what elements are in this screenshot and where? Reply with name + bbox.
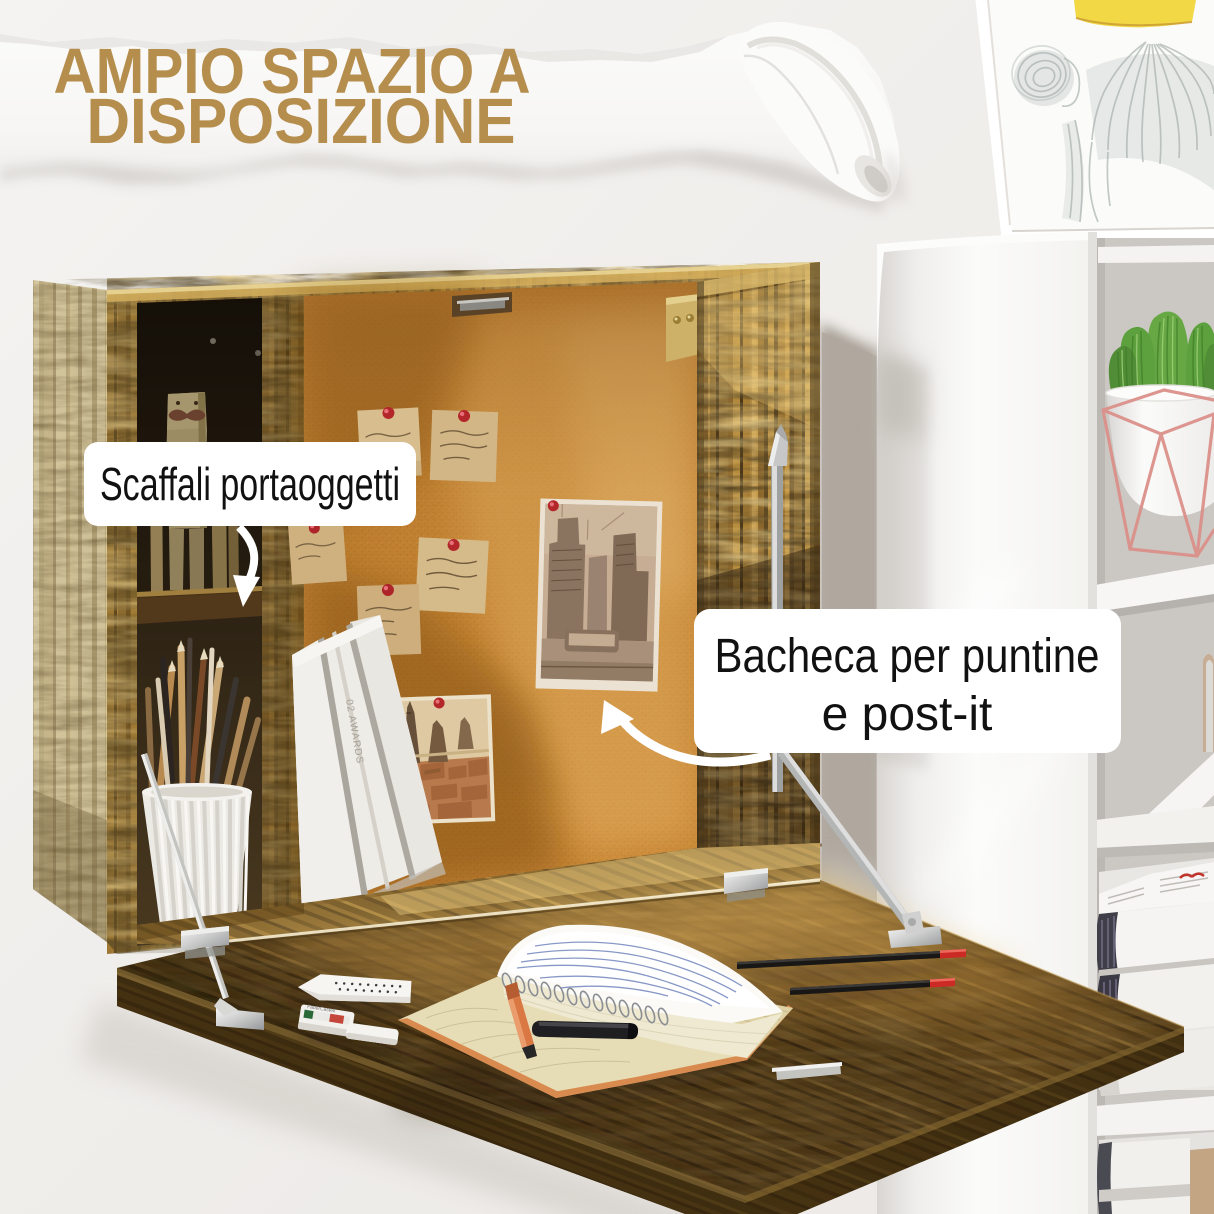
svg-text:Scaffali portaoggetti: Scaffali portaoggetti [100, 458, 400, 510]
svg-text:e post-it: e post-it [822, 688, 993, 741]
svg-text:DISPOSIZIONE: DISPOSIZIONE [87, 85, 516, 157]
svg-text:Bacheca per puntine: Bacheca per puntine [715, 630, 1100, 683]
